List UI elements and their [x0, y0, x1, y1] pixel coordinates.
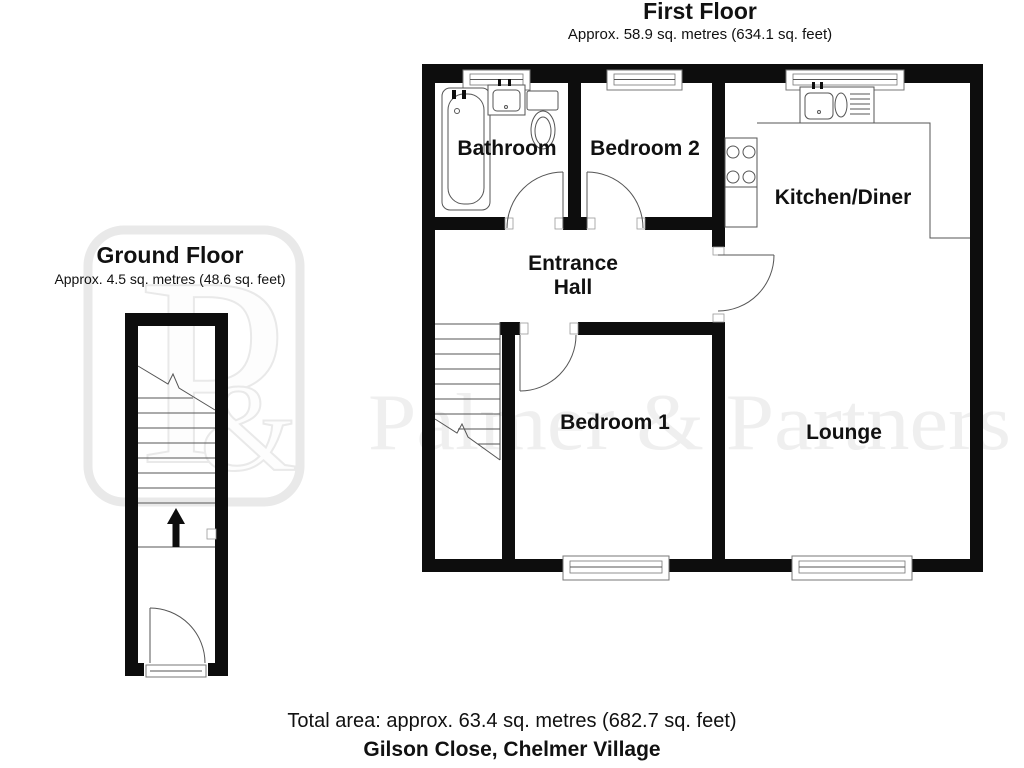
entrance-hall-label-line2: Hall — [554, 276, 593, 299]
address-text: Gilson Close, Chelmer Village — [363, 738, 660, 761]
footer: Total area: approx. 63.4 sq. metres (682… — [287, 710, 736, 761]
bedroom1-window — [563, 556, 669, 580]
entrance-hall-label-line1: Entrance — [528, 252, 618, 275]
lounge-window — [792, 556, 912, 580]
bedroom2-window — [607, 70, 682, 90]
bathroom-door — [507, 172, 563, 228]
total-area-text: Total area: approx. 63.4 sq. metres (682… — [287, 710, 736, 732]
bedroom2-label: Bedroom 2 — [590, 137, 700, 160]
watermark-brand-text: Palmer & Partners — [368, 379, 1011, 467]
lounge-label: Lounge — [806, 421, 882, 444]
kitchen-counter-edge — [757, 123, 970, 238]
door-jambs — [505, 218, 724, 334]
first-floor-title: First Floor — [643, 0, 757, 24]
kitchen-diner-label: Kitchen/Diner — [775, 186, 912, 209]
watermark-monogram-ampersand: & — [200, 360, 297, 498]
bedroom2-door — [587, 172, 643, 228]
ground-floor-title: Ground Floor — [97, 242, 244, 268]
bathroom-label: Bathroom — [457, 137, 556, 160]
bedroom1-label: Bedroom 1 — [560, 411, 670, 434]
floorplan-canvas: P & Palmer & Partners — [0, 0, 1024, 768]
ground-floor-area: Approx. 4.5 sq. metres (48.6 sq. feet) — [54, 271, 285, 287]
floorplan-page: P & Palmer & Partners — [0, 0, 1024, 768]
first-floor-area: Approx. 58.9 sq. metres (634.1 sq. feet) — [568, 26, 832, 43]
hob — [725, 138, 757, 227]
kitchen-fixtures — [725, 82, 970, 238]
kitchen-sink-unit — [800, 82, 874, 123]
kitchen-door — [718, 255, 774, 311]
front-door — [146, 608, 206, 677]
first-floor-header: First Floor Approx. 58.9 sq. metres (634… — [568, 0, 832, 43]
